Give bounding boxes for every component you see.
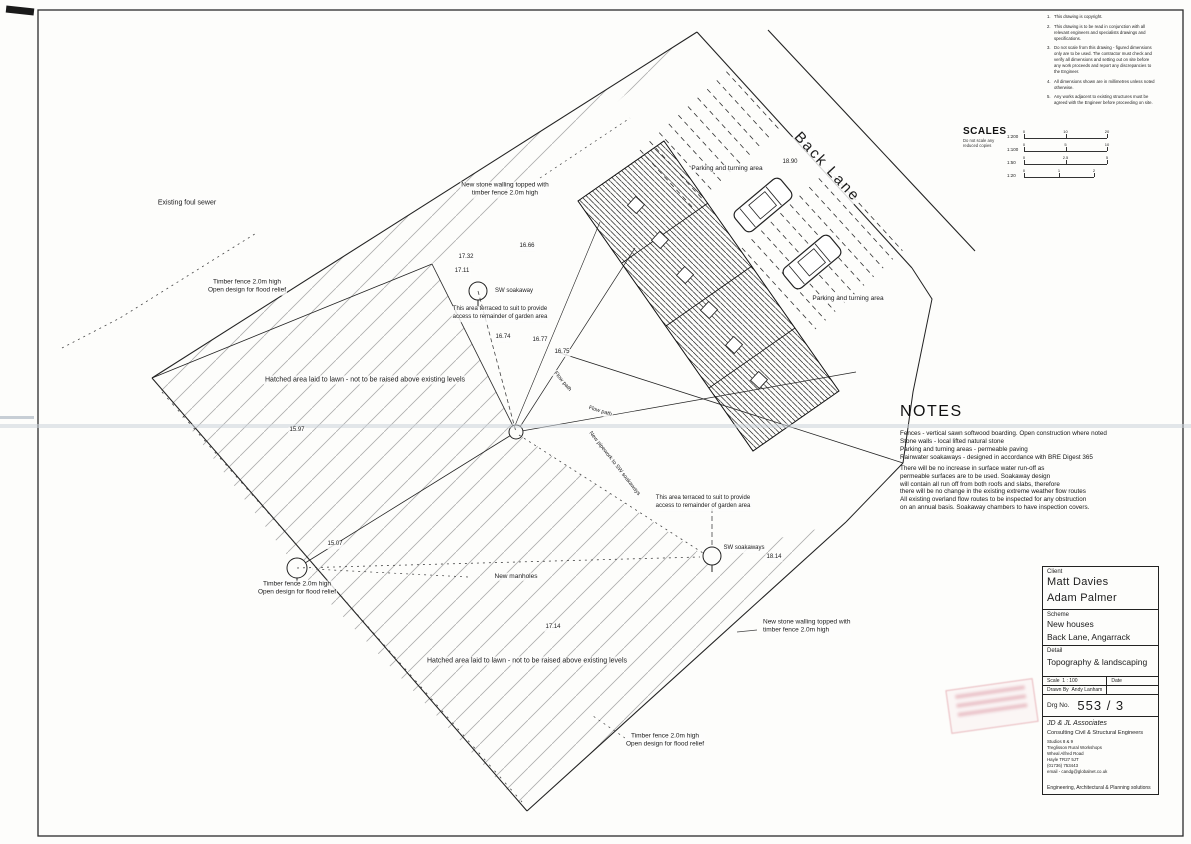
scale-tick-number: 2.5 <box>1063 155 1069 160</box>
scales-box: SCALES Do not scale anyreduced copies 1:… <box>963 126 1109 178</box>
firm-address-line: email - candg@globalnet.co.uk <box>1047 769 1154 775</box>
scale-tick <box>1024 160 1025 164</box>
detail-text: Topography & landscaping <box>1047 656 1154 669</box>
general-note-text: Any works adjacent to existing structure… <box>1054 94 1155 106</box>
note-line: Stone walls - local lifted natural stone <box>900 438 1185 446</box>
general-note-number: 5. <box>1047 94 1054 106</box>
notes-title: NOTES <box>900 403 1185 421</box>
general-note-number: 3. <box>1047 45 1054 75</box>
general-note-text: All dimensions shown are in millimetres … <box>1054 79 1155 91</box>
note-line: will contain all run off from both roofs… <box>900 481 1185 489</box>
general-note-text: Do not scale from this drawing - figured… <box>1054 45 1155 75</box>
scale-tick <box>1066 160 1067 164</box>
note-line: there will be no change in the existing … <box>900 488 1185 496</box>
soakaway-label: SW soakaways <box>722 545 765 553</box>
scale-bar-row: 1:20001020 <box>1007 126 1109 139</box>
scales-note-line: reduced copies <box>963 143 1007 148</box>
title-block: Client Matt DaviesAdam Palmer Scheme New… <box>1042 566 1159 795</box>
scales-title: SCALES <box>963 126 1007 137</box>
scale-tick <box>1107 160 1108 164</box>
drawn-by-empty-cell <box>1107 686 1158 694</box>
wall-note: New stone walling topped with timber fen… <box>460 182 549 199</box>
scale-bar: 0510 <box>1024 143 1107 152</box>
scale-tick-number: 10 <box>1105 142 1109 147</box>
spot-level: 17.14 <box>544 624 561 632</box>
wall-note: New stone walling topped with timber fen… <box>762 619 851 636</box>
scale-bar: 02.55 <box>1024 156 1107 165</box>
scale-bar-label: 1:100 <box>1007 147 1024 152</box>
lawn-note: Hatched area laid to lawn - not to be ra… <box>426 656 628 665</box>
note-line: permeable surfaces are to be used. Soaka… <box>900 473 1185 481</box>
client-names: Matt DaviesAdam Palmer <box>1047 575 1154 607</box>
scheme-text: New housesBack Lane, Angarrack <box>1047 618 1154 644</box>
scale-tick-number: 0 <box>1023 168 1025 173</box>
scale-bars: 1:200010201:10005101:5002.551:20012 <box>1007 126 1109 178</box>
drawn-by-value: Andy Lanham <box>1071 687 1102 693</box>
general-note-text: This drawing is copyright. <box>1054 14 1102 20</box>
scale-bar: 012 <box>1024 169 1094 178</box>
notes-lines: Fences - vertical sawn softwood boarding… <box>900 430 1185 512</box>
scale-tick-number: 2 <box>1093 168 1095 173</box>
scale-tick <box>1059 173 1060 177</box>
drawing-sheet: Existing foul sewerTimber fence 2.0m hig… <box>0 0 1191 844</box>
sewer-note: Existing foul sewer <box>157 198 217 207</box>
scheme-lines-line: Back Lane, Angarrack <box>1047 631 1154 644</box>
firm-section: JD & JL Associates Consulting Civil & St… <box>1043 717 1158 794</box>
scale-bar: 01020 <box>1024 130 1107 139</box>
firm-address: Studios 8 & 9Treglisson Rural WorkshopsW… <box>1047 739 1154 775</box>
client-lines-line: Adam Palmer <box>1047 591 1154 607</box>
fence-note: Timber fence 2.0m high Open design for f… <box>625 733 705 750</box>
general-notes: 1.This drawing is copyright.2.This drawi… <box>1047 14 1155 110</box>
parking-area-label: Parking and turning area <box>811 295 884 303</box>
fence-note: Timber fence 2.0m high Open design for f… <box>257 581 337 598</box>
scan-artifact <box>0 416 34 419</box>
garden-access-note: This area terraced to suit to provide ac… <box>655 495 752 511</box>
scale-bar-row: 1:1000510 <box>1007 139 1109 152</box>
spot-level: 18.14 <box>765 554 782 562</box>
scale-date-row: Scale 1 : 100 Date <box>1043 677 1158 686</box>
scale-tick-number: 1 <box>1058 168 1060 173</box>
scale-tick-number: 5 <box>1106 155 1108 160</box>
general-note-number: 4. <box>1047 79 1054 91</box>
spot-level: 18.90 <box>781 159 798 167</box>
scale-tick-number: 0 <box>1023 142 1025 147</box>
drg-no-row: Drg No. 553 / 3 <box>1043 695 1158 717</box>
firm-type: Consulting Civil & Structural Engineers <box>1047 730 1154 736</box>
note-line: There will be no increase in surface wat… <box>900 465 1185 473</box>
spot-level: 16.75 <box>553 349 570 357</box>
detail-section: Detail Topography & landscaping <box>1043 646 1158 677</box>
scale-bar-label: 1:50 <box>1007 160 1024 165</box>
general-note-item: 2.This drawing is to be read in conjunct… <box>1047 24 1155 42</box>
date-cell: Date <box>1107 677 1158 685</box>
firm-name: JD & JL Associates <box>1047 720 1154 727</box>
drawn-by-cell: Drawn By Andy Lanham <box>1043 686 1107 694</box>
scale-tick-number: 5 <box>1064 142 1066 147</box>
leader-line <box>737 630 757 632</box>
spot-level: 16.66 <box>518 243 535 251</box>
drg-no-value: 553 / 3 <box>1077 698 1124 713</box>
spot-level: 15.07 <box>326 541 343 549</box>
drg-no-label: Drg No. <box>1047 702 1069 709</box>
general-note-item: 1.This drawing is copyright. <box>1047 14 1155 20</box>
note-line: All existing overland flow routes to be … <box>900 496 1185 504</box>
drawn-by-label: Drawn By <box>1047 687 1069 693</box>
soakaway-label: SW soakaway <box>494 288 534 296</box>
scale-bar-label: 1:20 <box>1007 173 1024 178</box>
scale-value: 1 : 100 <box>1062 678 1077 684</box>
new-houses-block <box>578 141 839 451</box>
note-line: Fences - vertical sawn softwood boarding… <box>900 430 1185 438</box>
firm-tagline: Engineering, Architectural & Planning so… <box>1047 785 1154 791</box>
spot-level: 15.97 <box>288 427 305 435</box>
spot-level: 17.32 <box>457 254 474 262</box>
scale-bar-row: 1:5002.55 <box>1007 152 1109 165</box>
spot-level: 16.77 <box>531 337 548 345</box>
scale-tick <box>1024 134 1025 138</box>
note-line: Parking and turning areas - permeable pa… <box>900 446 1185 454</box>
scale-tick <box>1107 134 1108 138</box>
general-note-number: 1. <box>1047 14 1054 20</box>
fence-note: Timber fence 2.0m high Open design for f… <box>207 279 287 296</box>
lawn-note: Hatched area laid to lawn - not to be ra… <box>264 375 466 384</box>
scale-tick-number: 0 <box>1023 155 1025 160</box>
note-line: on an annual basis. Soakaway chambers to… <box>900 504 1185 512</box>
scale-tick <box>1024 147 1025 151</box>
scale-tick-number: 20 <box>1105 129 1109 134</box>
notes-block: NOTES Fences - vertical sawn softwood bo… <box>900 403 1185 512</box>
client-lines-line: Matt Davies <box>1047 575 1154 591</box>
general-note-text: This drawing is to be read in conjunctio… <box>1054 24 1155 42</box>
scheme-section: Scheme New housesBack Lane, Angarrack <box>1043 610 1158 647</box>
spot-level: 17.11 <box>454 268 471 276</box>
scheme-lines-line: New houses <box>1047 618 1154 631</box>
general-note-item: 5.Any works adjacent to existing structu… <box>1047 94 1155 106</box>
scale-tick <box>1066 134 1067 138</box>
drawn-by-row: Drawn By Andy Lanham <box>1043 686 1158 695</box>
scale-label: Scale <box>1047 678 1060 684</box>
scale-tick <box>1024 173 1025 177</box>
client-section: Client Matt DaviesAdam Palmer <box>1043 567 1158 610</box>
general-note-item: 3.Do not scale from this drawing - figur… <box>1047 45 1155 75</box>
parking-area-label: Parking and turning area <box>690 165 763 173</box>
general-note-item: 4.All dimensions shown are in millimetre… <box>1047 79 1155 91</box>
scale-cell: Scale 1 : 100 <box>1043 677 1107 685</box>
spot-level: 16.74 <box>494 334 511 342</box>
scale-tick-number: 0 <box>1023 129 1025 134</box>
scale-tick <box>1066 147 1067 151</box>
scale-tick-number: 10 <box>1063 129 1067 134</box>
scale-tick <box>1094 173 1095 177</box>
scale-bar-label: 1:200 <box>1007 134 1024 139</box>
detail-label: Detail <box>1047 648 1154 654</box>
date-label: Date <box>1111 678 1122 684</box>
scales-note: Do not scale anyreduced copies <box>963 138 1007 149</box>
garden-access-note: This area terraced to suit to provide ac… <box>452 306 549 322</box>
manhole-note: New manholes <box>494 573 539 581</box>
scale-tick <box>1107 147 1108 151</box>
scale-bar-row: 1:20012 <box>1007 165 1109 178</box>
note-line: Rainwater soakaways - designed in accord… <box>900 454 1185 462</box>
general-note-number: 2. <box>1047 24 1054 42</box>
